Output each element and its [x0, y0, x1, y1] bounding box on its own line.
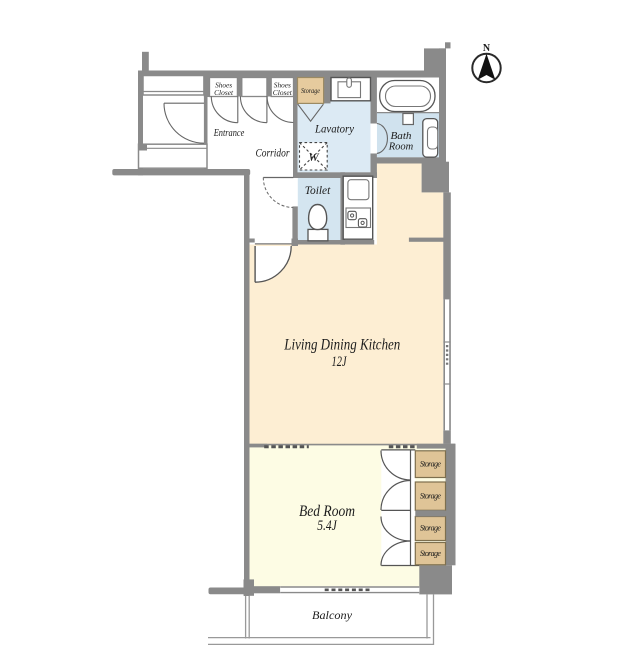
- svg-text:Living Dining Kitchen: Living Dining Kitchen: [283, 337, 400, 354]
- svg-text:Lavatory: Lavatory: [314, 122, 354, 136]
- svg-text:Room: Room: [388, 141, 413, 153]
- svg-text:Closet: Closet: [214, 88, 234, 97]
- svg-text:5.4J: 5.4J: [317, 518, 337, 534]
- svg-text:Storage: Storage: [301, 87, 320, 95]
- svg-text:Toilet: Toilet: [305, 185, 331, 197]
- svg-text:Storage: Storage: [420, 460, 441, 469]
- svg-text:Corridor: Corridor: [256, 148, 290, 160]
- svg-text:12J: 12J: [332, 354, 347, 370]
- svg-text:N: N: [483, 43, 491, 54]
- svg-text:Balcony: Balcony: [312, 608, 353, 622]
- svg-text:Storage: Storage: [420, 492, 441, 501]
- svg-text:Closet: Closet: [273, 88, 293, 97]
- svg-text:Storage: Storage: [420, 524, 441, 533]
- svg-text:Storage: Storage: [420, 549, 441, 558]
- svg-text:Entrance: Entrance: [213, 128, 245, 139]
- svg-text:W: W: [309, 150, 320, 164]
